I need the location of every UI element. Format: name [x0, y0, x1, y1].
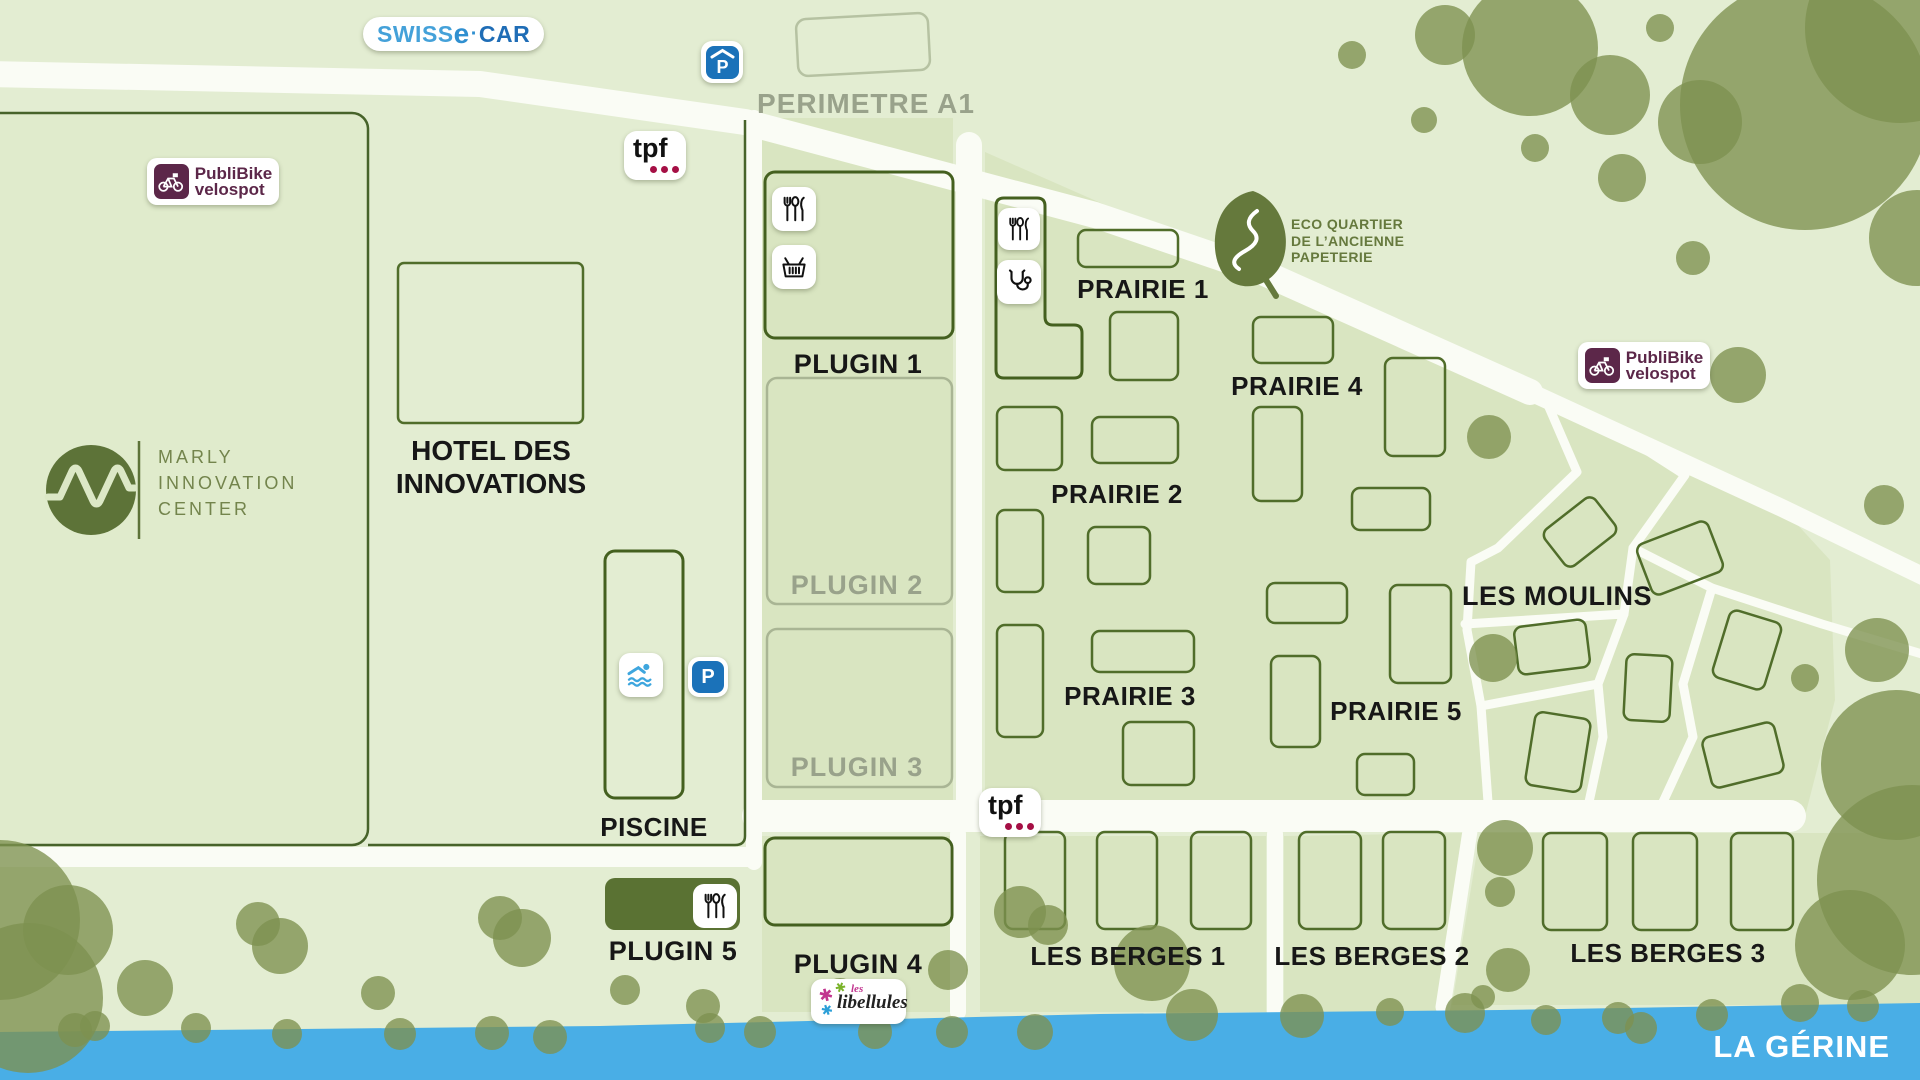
mic-line2: INNOVATION [158, 470, 297, 496]
svg-text:P: P [716, 57, 728, 77]
swiss-ecar-e: e [454, 18, 470, 50]
bike-icon [154, 164, 189, 199]
zone-label-les-moulins: LES MOULINS [1462, 581, 1652, 612]
mic-line3: CENTER [158, 496, 297, 522]
zone-label-prairie1: PRAIRIE 1 [1077, 274, 1209, 305]
zone-label-plugin4: PLUGIN 4 [794, 949, 923, 980]
swiss-ecar-badge[interactable]: SWISS e · CAR [363, 17, 544, 51]
zone-label-plugin5: PLUGIN 5 [609, 936, 738, 967]
medical-marker-prairie1[interactable] [997, 260, 1041, 304]
zone-label-plugin1: PLUGIN 1 [794, 349, 923, 380]
publibike-line2: velospot [195, 182, 272, 198]
tpf-label: tpf [988, 790, 1022, 821]
tpf-dots-icon [1005, 823, 1034, 830]
mic-logo-text: MARLY INNOVATION CENTER [158, 444, 297, 522]
zone-label-prairie5: PRAIRIE 5 [1330, 696, 1462, 727]
map-graphics [0, 0, 1920, 1080]
swimmer-icon [625, 659, 657, 691]
publibike-line2: velospot [1626, 366, 1703, 382]
parking-icon: P [692, 661, 724, 693]
hotel-label-line1: HOTEL DES [396, 434, 586, 467]
stethoscope-icon [1004, 267, 1034, 297]
zone-label-les-berges3: LES BERGES 3 [1570, 938, 1765, 969]
publibike-label: PubliBike velospot [195, 166, 272, 198]
shop-basket-icon [779, 252, 809, 282]
restaurant-marker-plugin5[interactable] [693, 884, 737, 928]
zone-label-prairie4: PRAIRIE 4 [1231, 371, 1363, 402]
hotel-label-line2: INNOVATIONS [396, 467, 586, 500]
restaurant-marker-prairie1[interactable] [998, 208, 1040, 250]
eco-line2: DE L’ANCIENNE [1291, 233, 1404, 250]
swiss-ecar-dot: · [471, 23, 478, 46]
zone-label-perimetre-a1: PERIMETRE A1 [757, 88, 975, 120]
publibike-station-east[interactable]: PubliBike velospot [1578, 342, 1710, 389]
publibike-label: PubliBike velospot [1626, 350, 1703, 382]
zone-label-hotel: HOTEL DES INNOVATIONS [396, 434, 586, 500]
covered-parking-icon: P [706, 46, 739, 79]
covered-parking-marker[interactable]: P [701, 41, 743, 83]
zone-label-plugin2: PLUGIN 2 [791, 570, 924, 601]
bike-icon [1585, 348, 1620, 383]
shop-marker-plugin1[interactable] [772, 245, 816, 289]
tpf-bus-stop-north[interactable]: tpf [624, 131, 686, 180]
zone-label-les-berges2: LES BERGES 2 [1274, 941, 1469, 972]
tpf-bus-stop-south[interactable]: tpf [979, 788, 1041, 837]
publibike-station-west[interactable]: PubliBike velospot [147, 158, 279, 205]
restaurant-marker-plugin1[interactable] [772, 187, 816, 231]
eco-line1: ECO QUARTIER [1291, 216, 1404, 233]
zone-label-prairie3: PRAIRIE 3 [1064, 681, 1196, 712]
eco-quartier-text: ECO QUARTIER DE L’ANCIENNE PAPETERIE [1291, 216, 1404, 266]
swimming-pool-marker[interactable] [619, 653, 663, 697]
parking-letter: P [701, 666, 714, 689]
zone-label-piscine: PISCINE [600, 812, 708, 843]
zone-label-prairie2: PRAIRIE 2 [1051, 479, 1183, 510]
mic-line1: MARLY [158, 444, 297, 470]
tpf-label: tpf [633, 133, 667, 164]
zone-label-plugin3: PLUGIN 3 [791, 752, 924, 783]
zone-label-les-berges1: LES BERGES 1 [1030, 941, 1225, 972]
swiss-ecar-car: CAR [479, 21, 530, 48]
restaurant-icon [700, 891, 730, 921]
restaurant-icon [779, 194, 809, 224]
restaurant-icon [1005, 215, 1033, 243]
libellules-name: libellules [837, 992, 908, 1014]
tpf-dots-icon [650, 166, 679, 173]
swiss-ecar-swiss: SWISS [377, 21, 454, 48]
eco-line3: PAPETERIE [1291, 249, 1404, 266]
site-map: PERIMETRE A1 PLUGIN 1 PLUGIN 2 PLUGIN 3 … [0, 0, 1920, 1080]
river-label: LA GÉRINE [1630, 1029, 1890, 1065]
les-libellules-badge[interactable]: ✱ ✱ ✱ les libellules [811, 979, 906, 1024]
parking-marker-piscine[interactable]: P [688, 657, 728, 697]
